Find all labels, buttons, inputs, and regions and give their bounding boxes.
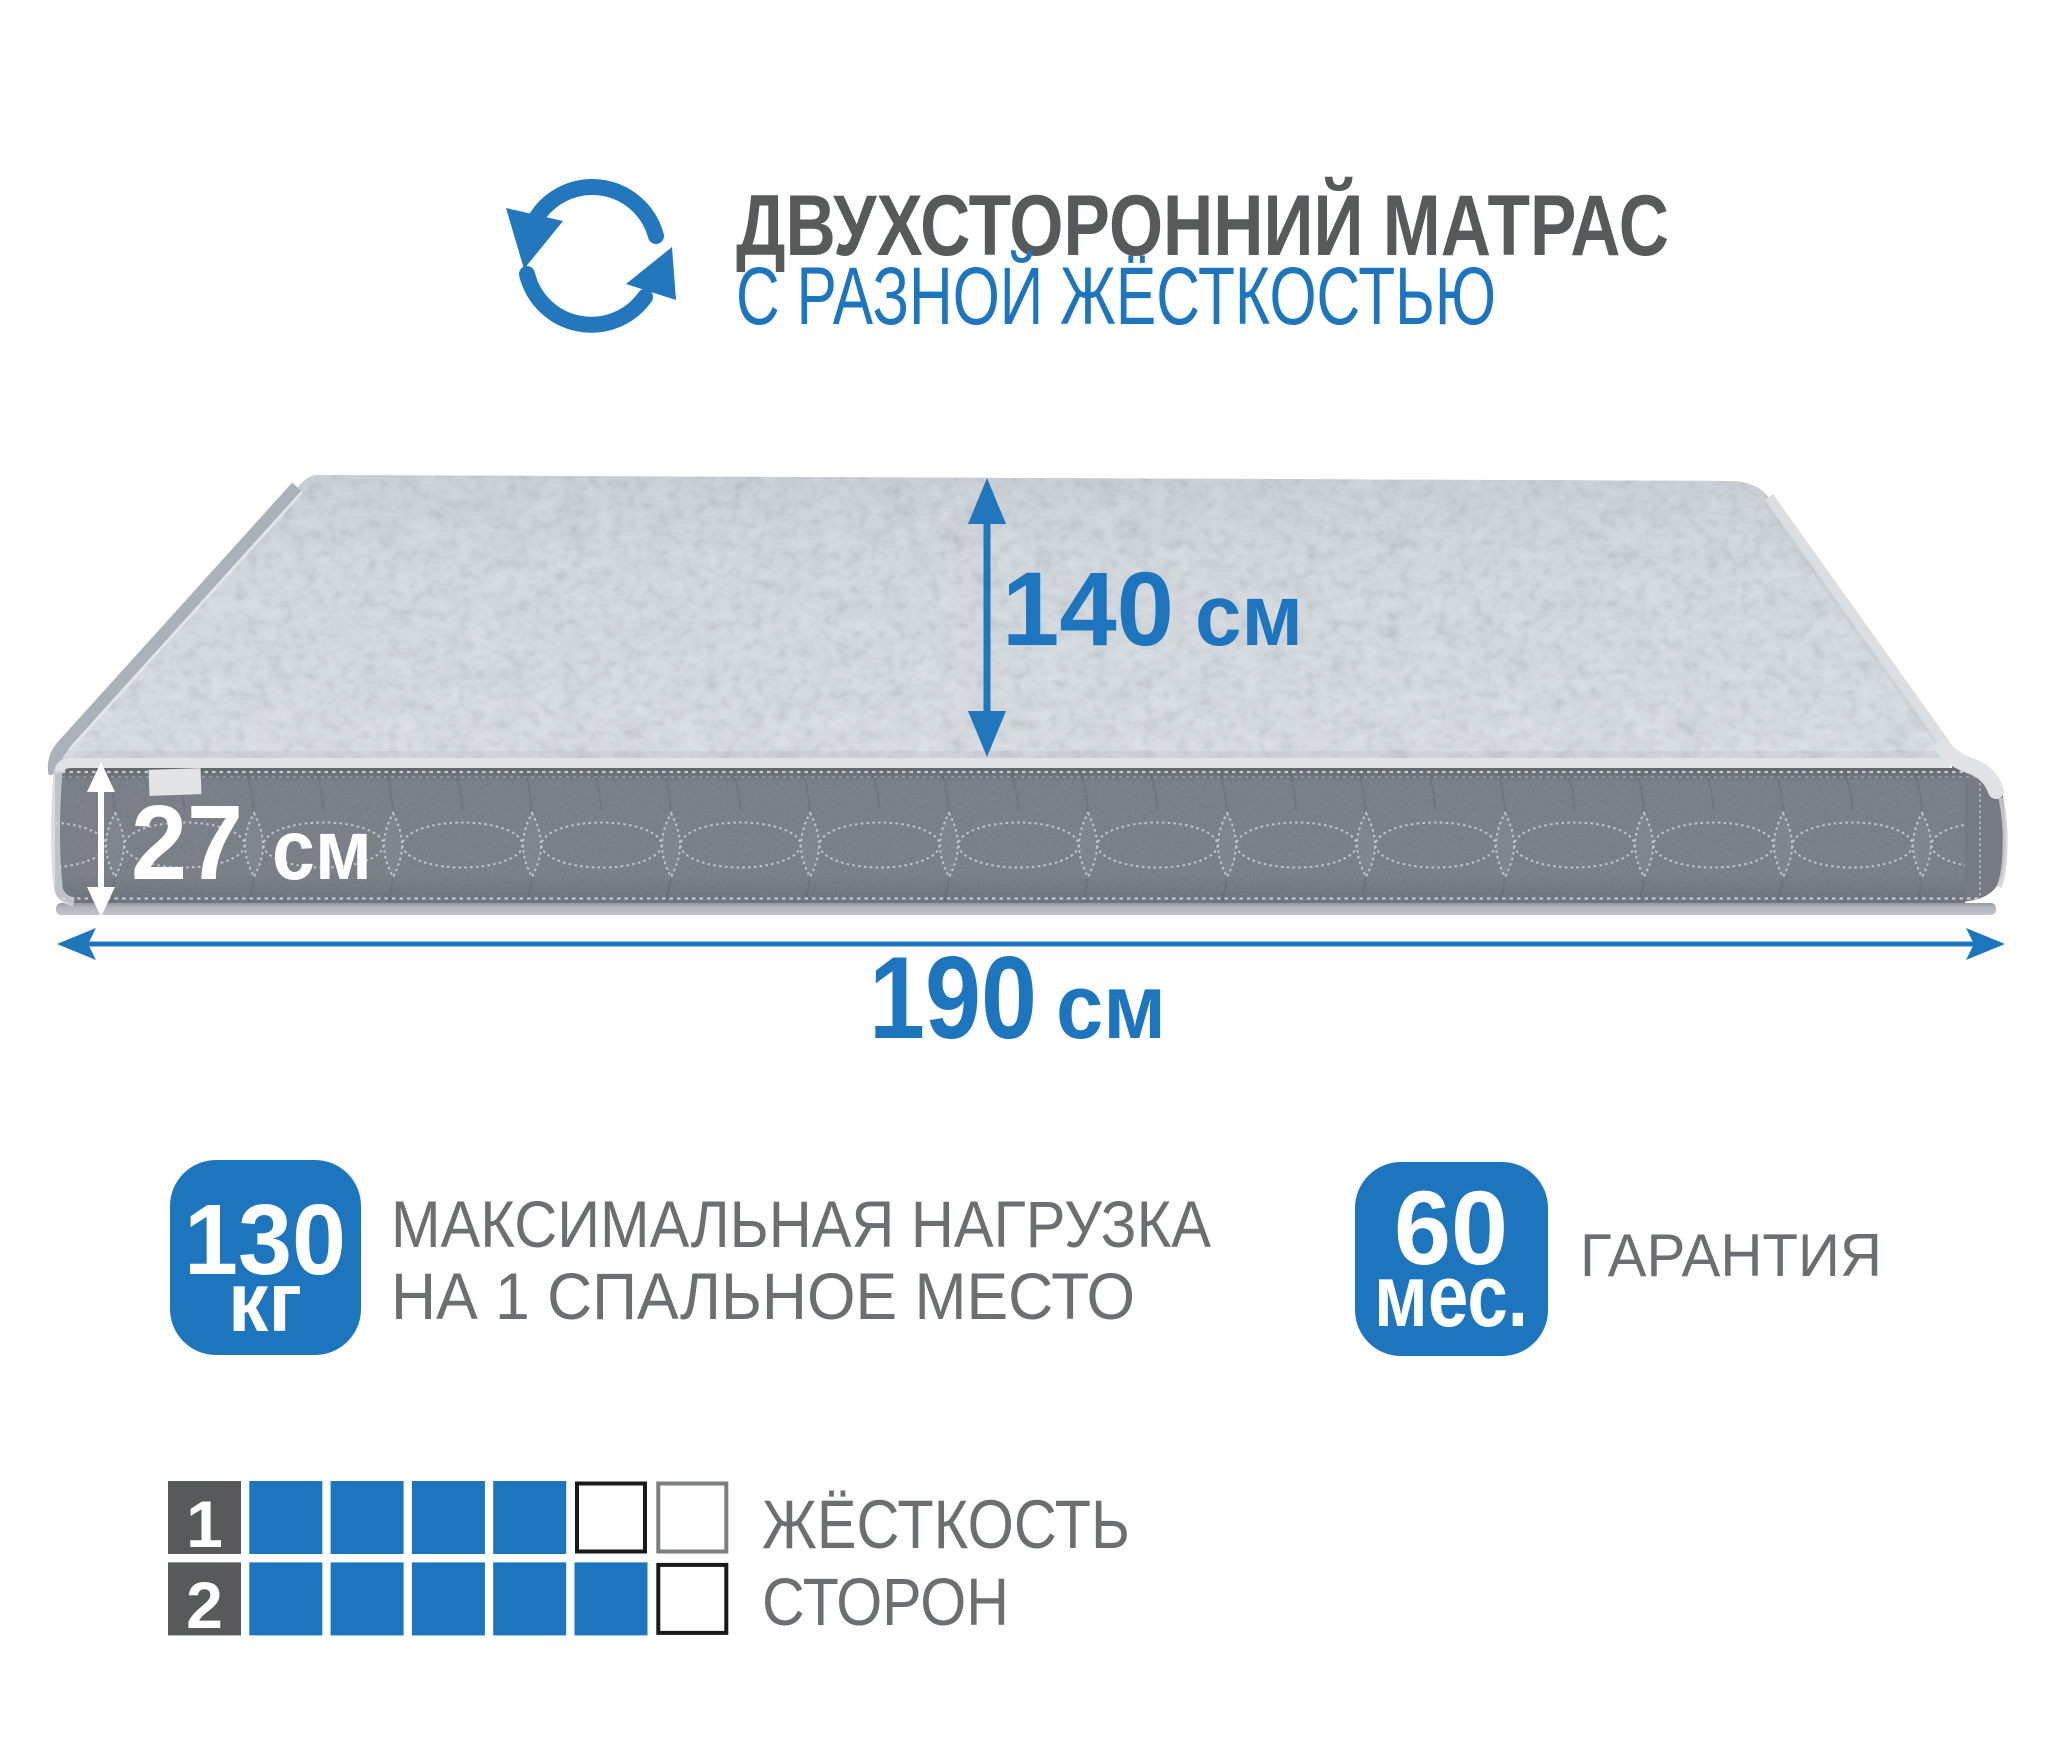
svg-text:ЖЁСТКОСТЬ: ЖЁСТКОСТЬ bbox=[762, 1486, 1130, 1563]
svg-text:27: 27 bbox=[131, 784, 243, 902]
svg-text:1: 1 bbox=[186, 1487, 223, 1561]
svg-text:см: см bbox=[272, 803, 372, 898]
svg-text:ГАРАНТИЯ: ГАРАНТИЯ bbox=[1580, 1222, 1882, 1289]
svg-text:см: см bbox=[1195, 567, 1303, 664]
svg-text:кг: кг bbox=[228, 1255, 302, 1349]
svg-text:2: 2 bbox=[186, 1568, 223, 1642]
svg-text:С РАЗНОЙ ЖЁСТКОСТЬЮ: С РАЗНОЙ ЖЁСТКОСТЬЮ bbox=[736, 250, 1496, 342]
svg-text:НА 1 СПАЛЬНОЕ МЕСТО: НА 1 СПАЛЬНОЕ МЕСТО bbox=[391, 1259, 1135, 1333]
svg-text:140: 140 bbox=[1002, 551, 1174, 668]
svg-text:190: 190 bbox=[869, 932, 1037, 1063]
svg-text:мес.: мес. bbox=[1374, 1246, 1528, 1345]
svg-text:см: см bbox=[1056, 956, 1166, 1058]
svg-text:МАКСИМАЛЬНАЯ НАГРУЗКА: МАКСИМАЛЬНАЯ НАГРУЗКА bbox=[391, 1187, 1211, 1261]
svg-text:СТОРОН: СТОРОН bbox=[762, 1565, 1009, 1640]
